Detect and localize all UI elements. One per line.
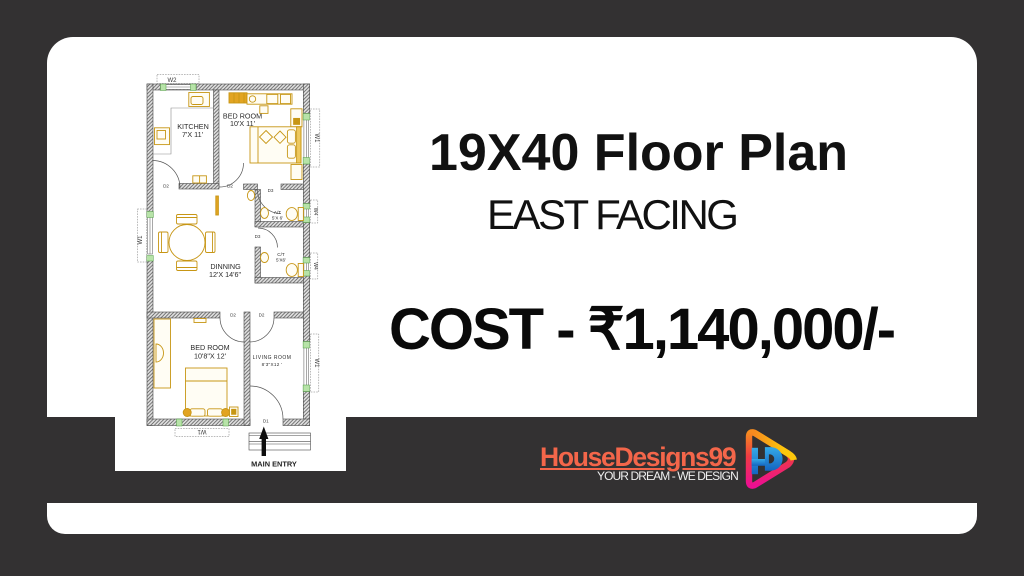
svg-text:12'X 14'6": 12'X 14'6" xyxy=(209,270,242,279)
svg-text:D2: D2 xyxy=(163,184,169,189)
svg-text:D2: D2 xyxy=(230,313,236,318)
svg-text:D2: D2 xyxy=(259,313,265,318)
svg-text:W4: W4 xyxy=(312,208,318,216)
svg-text:W2: W2 xyxy=(168,78,178,84)
svg-text:D3: D3 xyxy=(255,234,261,239)
svg-text:7'X 11': 7'X 11' xyxy=(182,130,204,139)
svg-text:10'8"X 12': 10'8"X 12' xyxy=(194,352,227,361)
svg-text:W1: W1 xyxy=(138,235,144,245)
svg-text:W1: W1 xyxy=(313,359,319,369)
svg-text:D1: D1 xyxy=(263,419,269,424)
svg-text:W1: W1 xyxy=(197,428,207,434)
svg-text:8'3"X12 ': 8'3"X12 ' xyxy=(262,362,283,367)
svg-text:5'X 6': 5'X 6' xyxy=(272,216,283,221)
svg-text:A/T: A/T xyxy=(274,210,281,215)
svg-text:W1: W1 xyxy=(313,134,319,144)
svg-text:LIVING ROOM: LIVING ROOM xyxy=(253,355,292,361)
svg-text:C/T: C/T xyxy=(277,252,285,257)
svg-text:D2: D2 xyxy=(227,184,233,189)
svg-text:5'X6': 5'X6' xyxy=(276,258,286,263)
svg-text:MAIN ENTRY: MAIN ENTRY xyxy=(251,460,297,469)
svg-text:D3: D3 xyxy=(268,188,274,193)
svg-text:W4: W4 xyxy=(312,262,318,270)
